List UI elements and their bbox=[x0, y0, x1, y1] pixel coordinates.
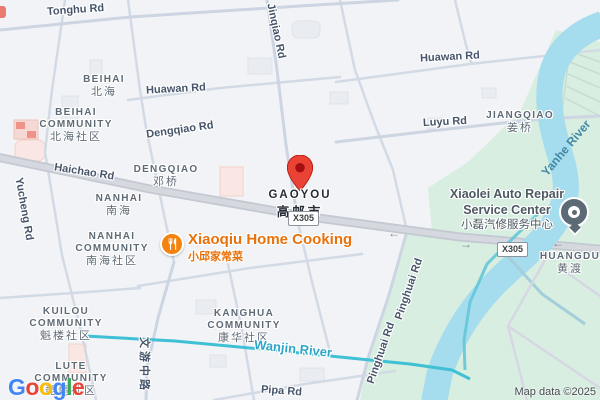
road-label-luyu: Luyu Rd bbox=[423, 115, 468, 129]
route-badge-x305-east: X305 bbox=[497, 242, 528, 257]
one-way-left-arrow-icon: ← bbox=[552, 236, 564, 250]
circle-poi-icon[interactable] bbox=[559, 197, 589, 227]
poi-label-xiaoqiu[interactable]: Xiaoqiu Home Cooking 小邱家常菜 bbox=[188, 231, 352, 264]
area-label-huangdu: HUANGDU 黄渡 bbox=[540, 251, 600, 276]
area-beihai-en: BEIHAI bbox=[83, 74, 125, 86]
poi-label-xiaolei[interactable]: Xiaolei Auto Repair Service Center 小磊汽修服… bbox=[450, 187, 564, 233]
xiaolei-line2: Service Center bbox=[450, 203, 564, 219]
area-label-nanhai: NANHAI 南海 bbox=[96, 193, 143, 218]
one-way-left-arrow-icon: ← bbox=[388, 226, 400, 240]
road-label-wenyou: 文游中路 bbox=[137, 337, 153, 393]
area-label-nanhai-community: NANHAI COMMUNITY 南海社区 bbox=[75, 231, 148, 268]
area-label-dengqiao: DENGQIAO 邓桥 bbox=[134, 164, 199, 189]
route-badge-x305-center: X305 bbox=[288, 211, 319, 226]
xiaoqiu-name-zh: 小邱家常菜 bbox=[188, 248, 352, 264]
gaoyou-name: GAOYOU bbox=[268, 189, 331, 201]
area-beihai-zh: 北海 bbox=[83, 86, 125, 99]
xiaolei-line1: Xiaolei Auto Repair bbox=[450, 187, 564, 203]
map-canvas[interactable]: ← → ← Tonghu Rd Jinqiao Rd Huawan Rd Hua… bbox=[0, 0, 600, 400]
area-label-beihai-community: BEIHAI COMMUNITY 北海社区 bbox=[39, 107, 112, 144]
map-attribution: Map data ©2025 bbox=[515, 386, 597, 398]
one-way-right-arrow-icon: → bbox=[460, 237, 472, 251]
xiaoqiu-name: Xiaoqiu Home Cooking bbox=[188, 231, 352, 248]
area-label-kuilou-community: KUILOU COMMUNITY 魁楼社区 bbox=[29, 306, 102, 343]
xiaolei-name-zh: 小磊汽修服务中心 bbox=[450, 218, 564, 232]
area-label-beihai: BEIHAI 北海 bbox=[83, 74, 125, 99]
area-label-jiangqiao: JIANGQIAO 姜桥 bbox=[486, 110, 554, 135]
google-logo[interactable]: Google bbox=[8, 374, 84, 400]
restaurant-icon[interactable] bbox=[160, 232, 184, 256]
cropped-poi-icon bbox=[0, 6, 6, 18]
